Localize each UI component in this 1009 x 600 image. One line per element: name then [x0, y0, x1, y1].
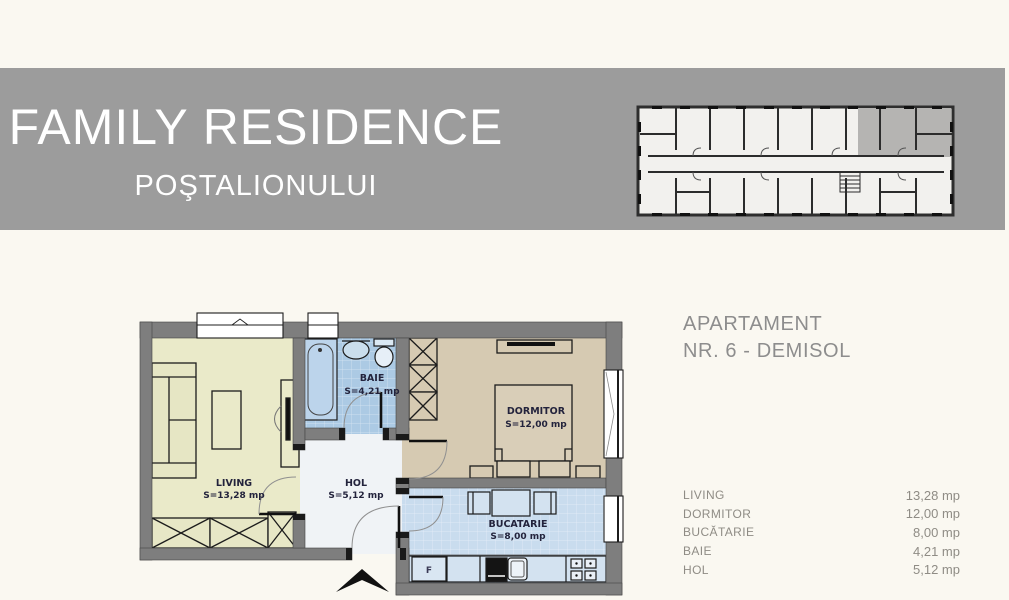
room-area: 13,28 mp [906, 488, 960, 503]
kitchen-cabinet-dark [486, 558, 507, 581]
table-row: BUCĂTARIE 8,00 mp [683, 523, 960, 542]
living-wardrobe [152, 512, 296, 548]
table-row: HOL 5,12 mp [683, 560, 960, 579]
bed-foot-left [497, 461, 530, 477]
room-area: 5,12 mp [913, 562, 960, 577]
bench [470, 466, 493, 478]
room-name: DORMITOR [683, 507, 751, 521]
toilet-tank [374, 339, 394, 346]
fridge-label: F [426, 566, 432, 576]
room-areas-table: LIVING 13,28 mp DORMITOR 12,00 mp BUCĂTA… [683, 486, 960, 579]
apartment-heading-line2: NR. 6 - DEMISOL [683, 338, 851, 365]
hol-area-label: S=5,12 mp [328, 491, 384, 501]
baie-area-label: S=4,21 mp [344, 387, 400, 397]
bucatarie-area-label: S=8,00 mp [490, 532, 546, 542]
dormitor-wardrobe [409, 338, 437, 420]
table-row: LIVING 13,28 mp [683, 486, 960, 505]
sink [343, 341, 369, 359]
table-row: BAIE 4,21 mp [683, 542, 960, 561]
living-label: LIVING [216, 478, 252, 489]
hol-label: HOL [345, 478, 367, 489]
baie-label: BAIE [360, 373, 385, 384]
kitchen-chair-right [534, 492, 556, 514]
dormitor-area-label: S=12,00 mp [505, 420, 567, 430]
entrance-arrow-icon [336, 569, 389, 592]
apartment-heading: APARTAMENT NR. 6 - DEMISOL [683, 311, 851, 365]
coffee-table [212, 391, 241, 449]
kitchen-chair-left [468, 492, 490, 514]
room-name: BAIE [683, 544, 712, 558]
kitchen-table [492, 490, 530, 516]
dresser [497, 340, 572, 353]
toilet [375, 347, 393, 367]
tv-icon [286, 398, 290, 440]
table-row: DORMITOR 12,00 mp [683, 505, 960, 524]
bucatarie-window [604, 496, 623, 542]
nightstand [576, 466, 600, 478]
apartment-heading-line1: APARTAMENT [683, 311, 851, 338]
living-area-label: S=13,28 mp [203, 491, 265, 501]
room-area: 8,00 mp [913, 525, 960, 540]
room-name: LIVING [683, 488, 725, 502]
bucatarie-label: BUCATARIE [489, 519, 548, 530]
room-area: 4,21 mp [913, 544, 960, 559]
room-name: BUCĂTARIE [683, 525, 754, 539]
room-area: 12,00 mp [906, 506, 960, 521]
dresser-tv-icon [507, 342, 555, 346]
dormitor-window [604, 370, 623, 458]
dormitor-label: DORMITOR [507, 406, 566, 417]
room-name: HOL [683, 563, 709, 577]
bed-foot-right [539, 461, 570, 477]
